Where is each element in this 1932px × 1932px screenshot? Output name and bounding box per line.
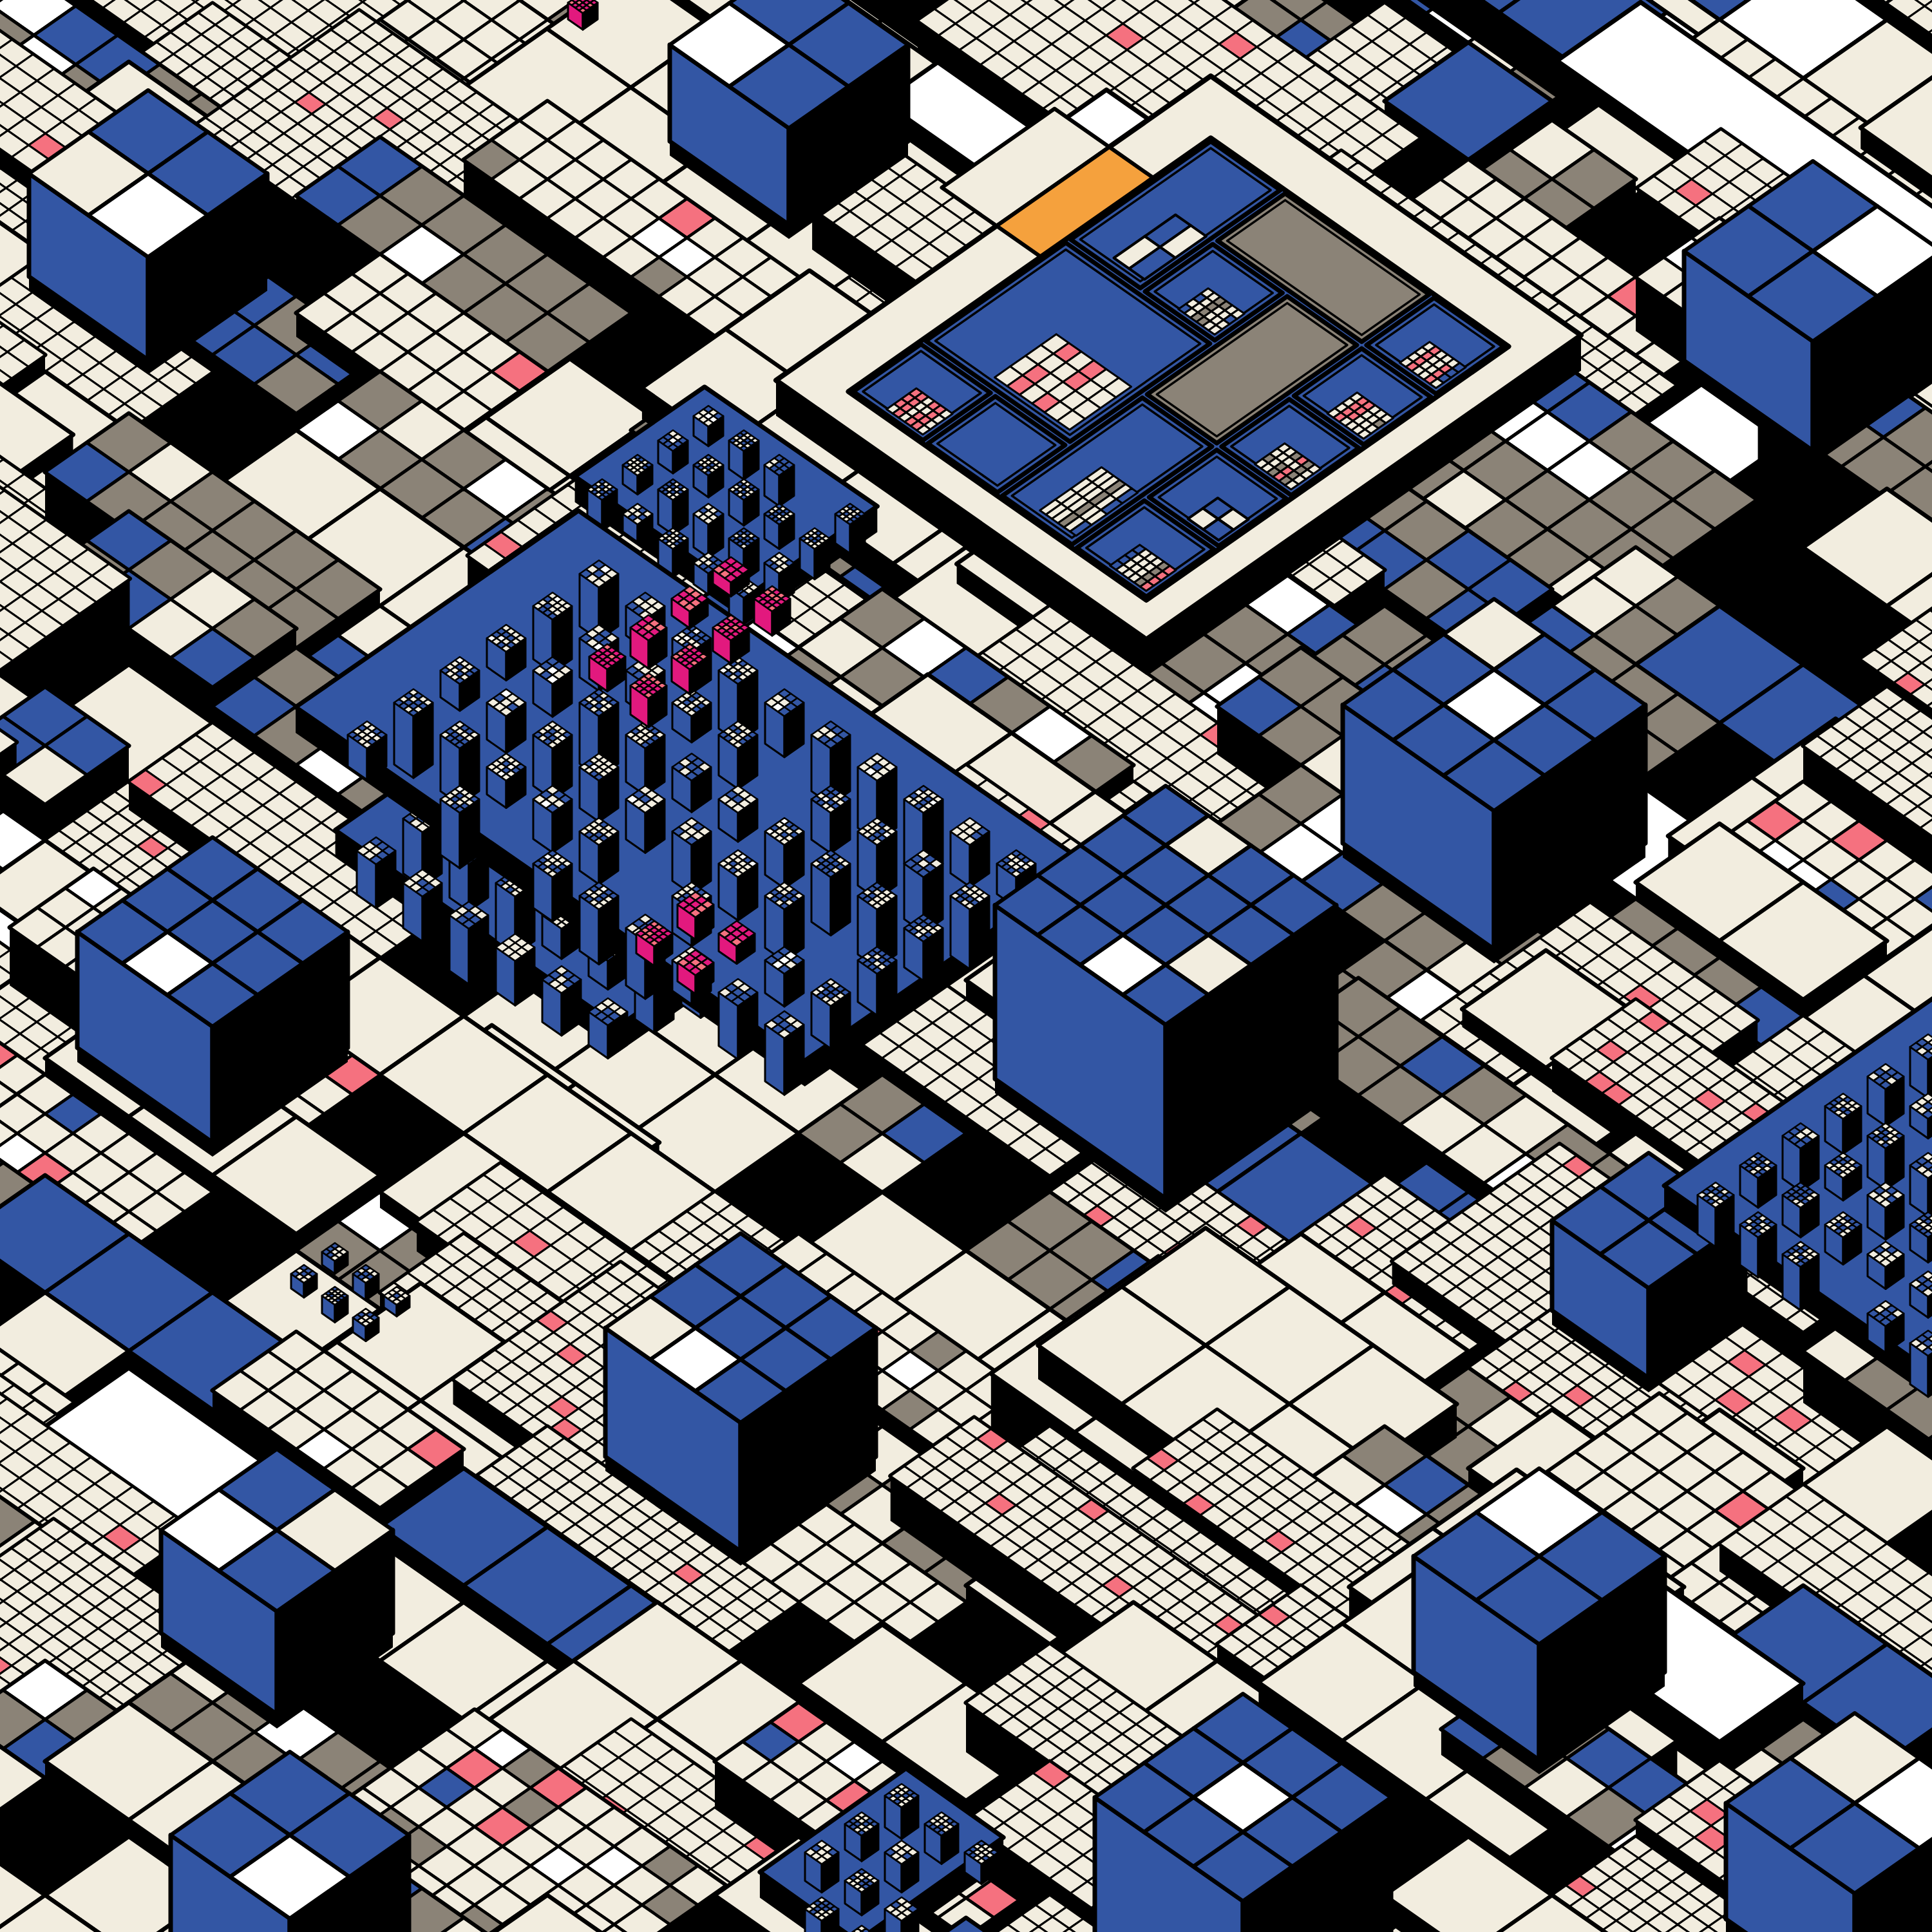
artwork-frame <box>0 0 1932 1932</box>
isometric-generative-art-canvas <box>0 0 1932 1932</box>
